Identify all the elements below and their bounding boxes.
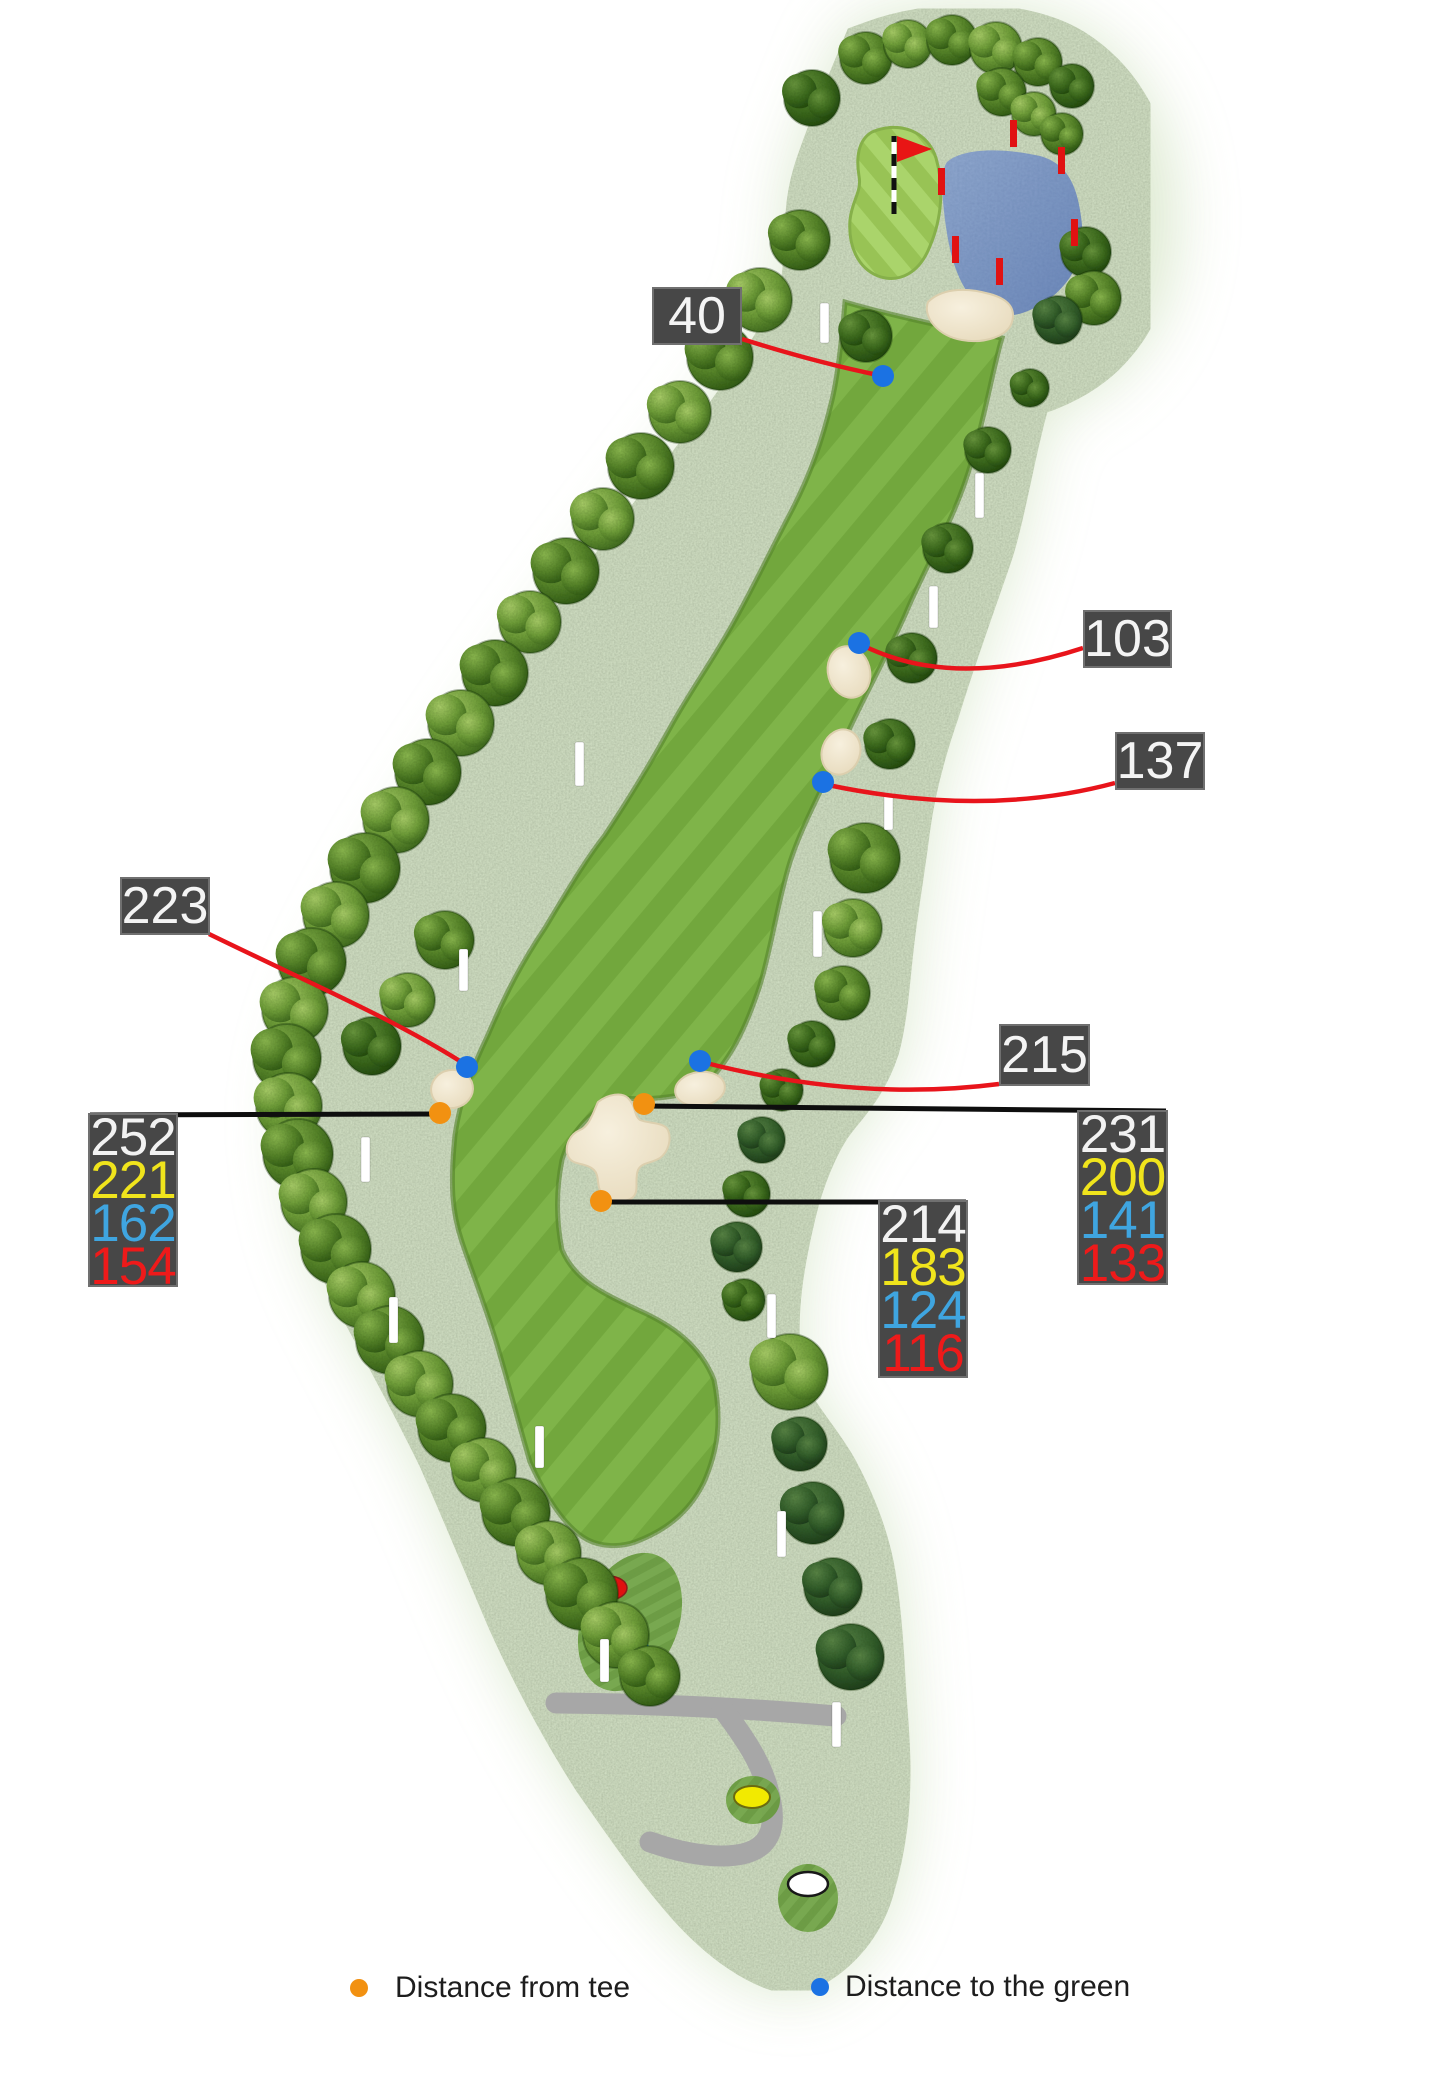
tee-marker-white (788, 1872, 828, 1896)
distance-red: 154 (90, 1245, 176, 1288)
distance-red: 133 (1079, 1242, 1166, 1285)
tree (782, 70, 840, 126)
distance-post (767, 1294, 776, 1338)
tree (802, 1558, 862, 1616)
tree (814, 966, 870, 1020)
tree (737, 1117, 785, 1163)
tree (921, 523, 973, 573)
to-green-dot-223 (456, 1056, 478, 1078)
tree (822, 899, 882, 957)
distance-post (929, 586, 938, 628)
tree (863, 719, 915, 769)
to-green-dot-215 (689, 1050, 711, 1072)
tree (787, 1021, 835, 1067)
tree (710, 1222, 762, 1272)
callout-137: 137 (1115, 732, 1205, 790)
callout-103: 103 (1083, 610, 1172, 668)
legend-from-tee-label: Distance from tee (395, 1971, 630, 2005)
from-tee-dot-214 (590, 1190, 612, 1212)
tree (771, 1417, 827, 1471)
distance-box-right: 231 200 141 133 (1077, 1110, 1168, 1285)
distance-box-left: 252 221 162 154 (88, 1113, 178, 1287)
hazard-stake (1071, 219, 1078, 246)
tree (768, 210, 830, 270)
distance-post (535, 1426, 544, 1468)
from-tee-dot-252 (429, 1102, 451, 1124)
hazard-stake (996, 258, 1003, 285)
tee-marker-yellow (734, 1786, 770, 1808)
distance-post (884, 795, 893, 830)
distance-post (459, 949, 468, 991)
distance-post (361, 1137, 370, 1182)
tree (722, 1279, 766, 1321)
hazard-stake (938, 168, 945, 195)
tree (1049, 64, 1095, 108)
tree (1059, 227, 1111, 277)
distance-post (832, 1702, 841, 1747)
hazard-stake (1058, 147, 1065, 174)
legend-from-tee-dot (350, 1979, 368, 1997)
distance-post (600, 1639, 609, 1682)
distance-post (975, 473, 984, 518)
tree (963, 427, 1011, 473)
hazard-stake (952, 236, 959, 263)
distance-post (813, 911, 822, 957)
from-tee-dot-231 (633, 1093, 655, 1115)
tree (1010, 369, 1049, 407)
distance-post (777, 1511, 786, 1557)
tree (606, 433, 674, 499)
tree (722, 1171, 770, 1217)
distance-post (820, 303, 829, 343)
tree (882, 20, 932, 68)
legend-to-green-label: Distance to the green (845, 1970, 1130, 2004)
to-green-dot-40 (872, 365, 894, 387)
distance-post (575, 742, 584, 786)
distance-red: 116 (880, 1332, 966, 1375)
tree (838, 310, 892, 362)
tree (647, 381, 711, 443)
callout-223: 223 (120, 877, 210, 935)
tree (1032, 296, 1082, 344)
distance-post (389, 1297, 398, 1343)
legend-to-green-dot (811, 1978, 829, 1996)
golf-hole-map: 40 103 137 223 215 252 221 162 154 231 2… (0, 0, 1447, 2079)
tree (341, 1017, 401, 1075)
to-green-dot-103 (848, 632, 870, 654)
hazard-stake (1010, 120, 1017, 147)
callout-215: 215 (999, 1024, 1090, 1086)
to-green-dot-137 (812, 771, 834, 793)
distance-box-middle: 214 183 124 116 (878, 1200, 968, 1378)
tree (618, 1646, 680, 1706)
callout-40: 40 (652, 287, 742, 345)
